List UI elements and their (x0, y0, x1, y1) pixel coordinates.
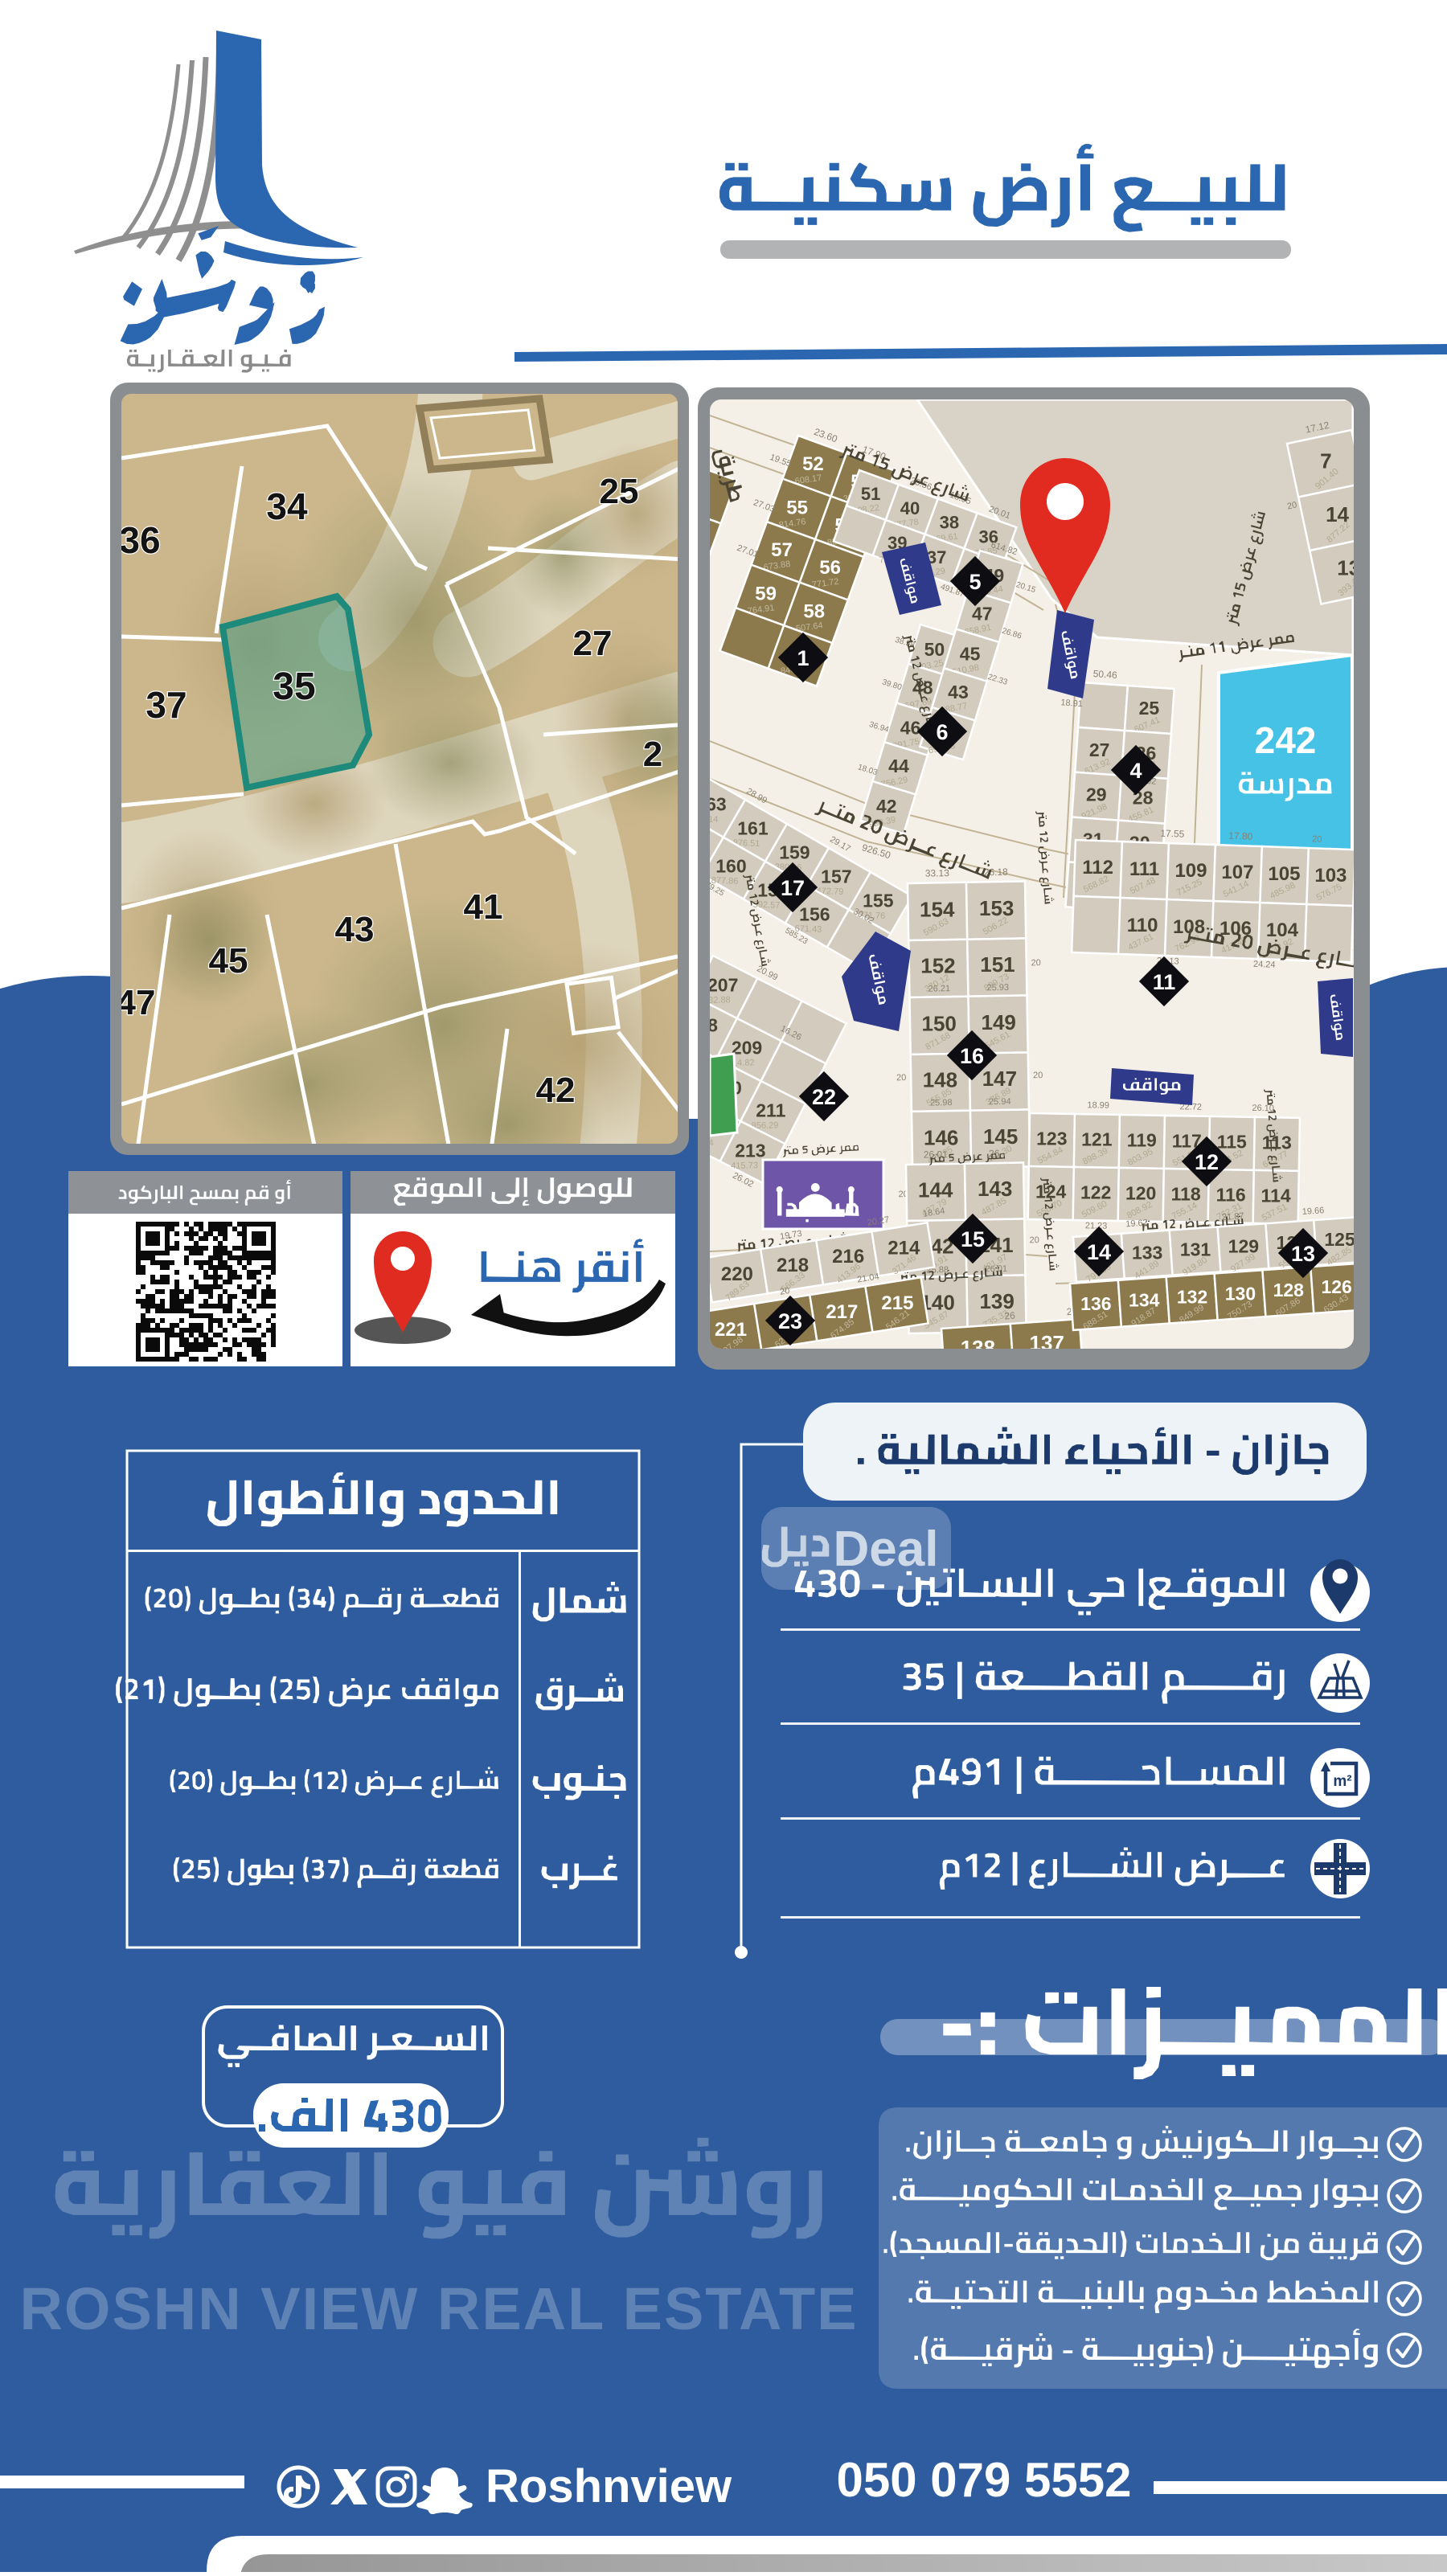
svg-text:25.94: 25.94 (989, 1097, 1011, 1107)
svg-text:151: 151 (980, 952, 1015, 977)
svg-text:Roshnview: Roshnview (486, 2460, 732, 2513)
svg-text:45: 45 (209, 941, 248, 981)
svg-text:110: 110 (1127, 915, 1158, 936)
svg-text:20: 20 (779, 1286, 790, 1297)
svg-text:13: 13 (1291, 1242, 1315, 1266)
svg-text:18.91: 18.91 (1060, 698, 1083, 709)
svg-text:145: 145 (983, 1124, 1018, 1149)
svg-text:55: 55 (786, 497, 808, 518)
svg-text:37: 37 (146, 684, 187, 726)
svg-text:213: 213 (735, 1140, 765, 1161)
svg-text:56: 56 (819, 557, 841, 579)
svg-text:46: 46 (900, 717, 921, 738)
svg-text:27: 27 (573, 624, 613, 663)
svg-text:116: 116 (1216, 1184, 1246, 1205)
svg-text:128: 128 (1273, 1280, 1305, 1300)
svg-text:103: 103 (1314, 865, 1347, 887)
svg-text:4: 4 (1129, 759, 1142, 783)
svg-text:156: 156 (799, 903, 830, 924)
svg-text:25.98: 25.98 (930, 1098, 953, 1108)
svg-text:216: 216 (832, 1246, 864, 1268)
svg-text:592.57: 592.57 (752, 900, 780, 911)
svg-text:215: 215 (881, 1292, 913, 1314)
svg-text:129: 129 (1228, 1235, 1259, 1256)
svg-text:220: 220 (721, 1263, 753, 1285)
svg-text:132: 132 (1177, 1286, 1207, 1307)
svg-text:149: 149 (981, 1010, 1015, 1034)
svg-text:26.01: 26.01 (985, 1264, 1007, 1274)
svg-text:21.87: 21.87 (1222, 1211, 1244, 1222)
svg-text:5: 5 (969, 570, 981, 594)
svg-text:20: 20 (1033, 1071, 1043, 1080)
svg-text:15: 15 (961, 1227, 985, 1251)
svg-text:130: 130 (1225, 1283, 1256, 1304)
svg-text:118: 118 (1171, 1183, 1201, 1204)
svg-text:44: 44 (888, 756, 909, 776)
svg-text:2: 2 (643, 735, 662, 774)
svg-text:153: 153 (979, 896, 1014, 920)
svg-text:104: 104 (1266, 919, 1299, 941)
svg-text:20: 20 (1029, 1235, 1039, 1245)
svg-text:114: 114 (1261, 1185, 1291, 1206)
svg-text:1: 1 (797, 646, 809, 670)
svg-text:42: 42 (536, 1071, 576, 1110)
svg-text:415.73: 415.73 (731, 1161, 758, 1171)
svg-text:146: 146 (924, 1125, 958, 1149)
svg-text:17.55: 17.55 (1160, 828, 1185, 840)
svg-text:26.21: 26.21 (928, 984, 950, 993)
svg-text:25: 25 (600, 472, 639, 511)
svg-text:105: 105 (1268, 863, 1300, 885)
svg-text:154: 154 (920, 897, 955, 921)
svg-text:19.62: 19.62 (1125, 1218, 1148, 1230)
svg-text:20: 20 (1286, 500, 1297, 511)
svg-text:Deal: Deal (834, 1521, 939, 1577)
svg-text:43: 43 (948, 682, 969, 702)
svg-text:6: 6 (936, 720, 948, 744)
svg-text:133: 133 (1132, 1243, 1162, 1263)
svg-text:42: 42 (876, 796, 897, 817)
svg-text:22: 22 (812, 1085, 836, 1109)
svg-text:161: 161 (737, 818, 769, 839)
svg-text:209: 209 (732, 1037, 762, 1058)
svg-text:16: 16 (960, 1044, 984, 1068)
svg-text:155: 155 (863, 891, 894, 911)
svg-text:11: 11 (1153, 970, 1176, 994)
svg-text:115: 115 (1217, 1131, 1247, 1152)
svg-text:19.66: 19.66 (1301, 1206, 1324, 1217)
svg-text:120: 120 (1125, 1182, 1156, 1203)
svg-text:41: 41 (464, 887, 503, 927)
svg-text:26: 26 (1004, 1310, 1016, 1322)
svg-text:211: 211 (756, 1100, 785, 1120)
svg-text:m²: m² (1333, 1773, 1351, 1790)
svg-text:50: 50 (924, 639, 945, 660)
svg-text:143: 143 (978, 1177, 1012, 1201)
svg-text:17.80: 17.80 (1228, 830, 1253, 842)
svg-text:20: 20 (1312, 834, 1322, 844)
svg-text:122: 122 (1080, 1182, 1111, 1202)
svg-text:50.46: 50.46 (1092, 668, 1117, 681)
svg-text:20: 20 (1031, 958, 1041, 968)
svg-text:12: 12 (1195, 1150, 1219, 1174)
svg-text:40: 40 (900, 498, 920, 518)
svg-text:18.99: 18.99 (1087, 1100, 1109, 1110)
svg-text:107: 107 (1221, 862, 1253, 883)
svg-text:35: 35 (273, 666, 315, 708)
svg-text:144: 144 (918, 1177, 953, 1202)
svg-text:131: 131 (1180, 1239, 1211, 1259)
svg-text:119: 119 (1127, 1129, 1157, 1150)
svg-text:136: 136 (1080, 1293, 1111, 1314)
svg-text:109: 109 (1174, 860, 1207, 882)
svg-text:207: 207 (707, 974, 738, 995)
svg-text:134: 134 (1129, 1290, 1160, 1311)
svg-text:51: 51 (861, 484, 880, 504)
svg-text:121: 121 (1081, 1128, 1113, 1149)
svg-text:14: 14 (1087, 1240, 1111, 1264)
svg-text:221: 221 (715, 1319, 747, 1341)
svg-text:218: 218 (777, 1255, 809, 1276)
svg-text:ROSHN VIEW REAL ESTATE: ROSHN VIEW REAL ESTATE (19, 2275, 858, 2342)
svg-text:111: 111 (1129, 858, 1159, 880)
svg-text:58: 58 (803, 600, 825, 622)
svg-text:150: 150 (922, 1011, 957, 1035)
svg-text:123: 123 (1036, 1128, 1067, 1149)
svg-text:159: 159 (779, 842, 810, 863)
svg-text:47: 47 (972, 604, 993, 625)
svg-text:160: 160 (715, 855, 746, 876)
svg-text:125: 125 (1324, 1229, 1355, 1250)
svg-text:23: 23 (778, 1309, 802, 1333)
svg-text:050 079 5552: 050 079 5552 (836, 2453, 1131, 2507)
svg-text:59: 59 (755, 584, 777, 605)
svg-text:214: 214 (887, 1237, 920, 1259)
svg-text:147: 147 (982, 1067, 1017, 1091)
svg-text:47: 47 (117, 983, 156, 1022)
svg-text:43: 43 (335, 910, 375, 949)
svg-text:25.93: 25.93 (986, 983, 1009, 993)
svg-text:20: 20 (896, 1073, 906, 1083)
svg-text:157: 157 (821, 866, 851, 887)
svg-text:38: 38 (940, 513, 959, 533)
svg-text:24.24: 24.24 (1253, 960, 1276, 970)
svg-text:126: 126 (1321, 1276, 1351, 1297)
svg-text:36: 36 (119, 519, 160, 561)
svg-text:52: 52 (802, 453, 824, 475)
svg-text:57: 57 (771, 539, 793, 561)
svg-text:17: 17 (781, 876, 805, 900)
svg-text:45: 45 (960, 643, 981, 664)
svg-text:152: 152 (920, 953, 955, 977)
svg-text:113: 113 (1262, 1132, 1292, 1153)
svg-text:26: 26 (989, 1148, 1000, 1159)
svg-text:34: 34 (266, 485, 308, 527)
svg-text:217: 217 (826, 1301, 858, 1323)
svg-text:33.13: 33.13 (925, 867, 950, 879)
svg-text:148: 148 (923, 1067, 957, 1091)
svg-text:112: 112 (1082, 857, 1113, 878)
svg-text:242: 242 (1255, 719, 1317, 761)
